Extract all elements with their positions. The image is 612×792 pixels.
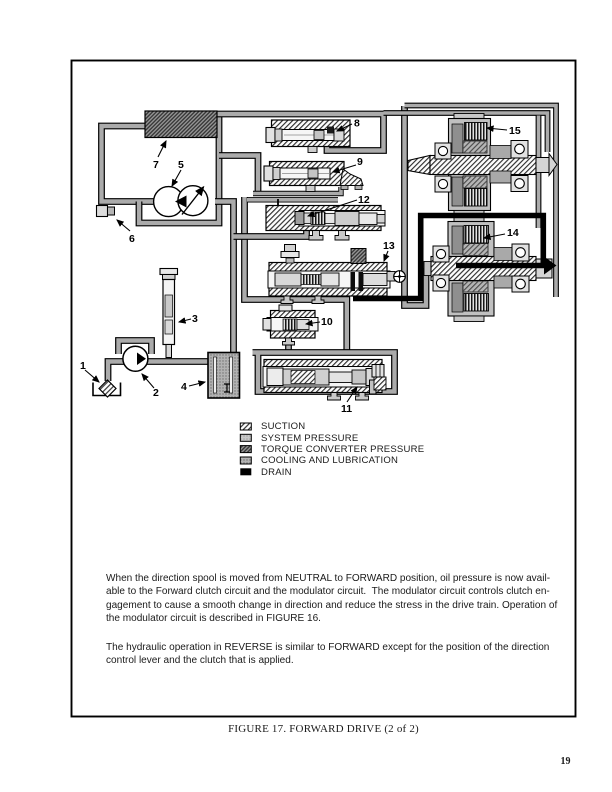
svg-text:14: 14 [507, 227, 519, 239]
svg-text:10: 10 [321, 316, 333, 328]
svg-text:8: 8 [354, 118, 360, 130]
svg-text:7: 7 [153, 159, 159, 171]
svg-text:5: 5 [178, 159, 184, 171]
svg-text:2: 2 [153, 387, 159, 399]
svg-text:11: 11 [341, 403, 352, 415]
svg-text:9: 9 [357, 156, 363, 168]
svg-text:15: 15 [509, 125, 521, 137]
svg-text:6: 6 [129, 233, 135, 245]
svg-text:13: 13 [383, 240, 395, 252]
svg-text:4: 4 [181, 381, 187, 393]
svg-text:3: 3 [192, 313, 198, 325]
svg-text:12: 12 [358, 194, 370, 206]
